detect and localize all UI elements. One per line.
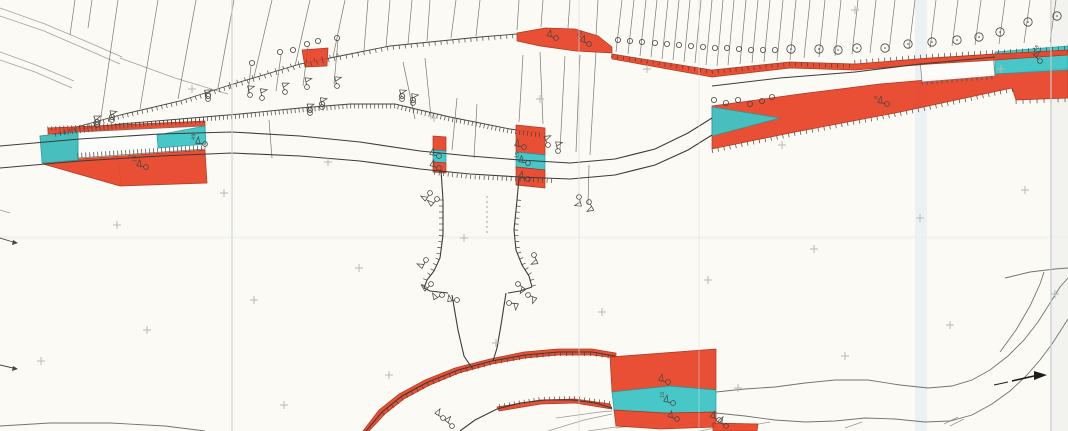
- plan-svg: 1520618491910: [0, 0, 1068, 431]
- block-cyan: [612, 386, 716, 413]
- block-red-bottom: [614, 410, 716, 429]
- strip-a-red-top: [433, 136, 446, 151]
- parcel-number: 15: [514, 152, 521, 159]
- parcel-number: 10: [659, 391, 666, 398]
- cyan-area-left: [40, 132, 78, 163]
- parcel-number: 19: [132, 156, 139, 163]
- block-red-top: [610, 349, 716, 392]
- parcel-number: 49: [191, 133, 198, 140]
- strip-b-red-top: [516, 125, 545, 155]
- scanned-plan: 1520618491910: [0, 0, 1068, 431]
- red-strip-bottom-right: [713, 423, 758, 431]
- red-triangle-mid: [302, 48, 328, 67]
